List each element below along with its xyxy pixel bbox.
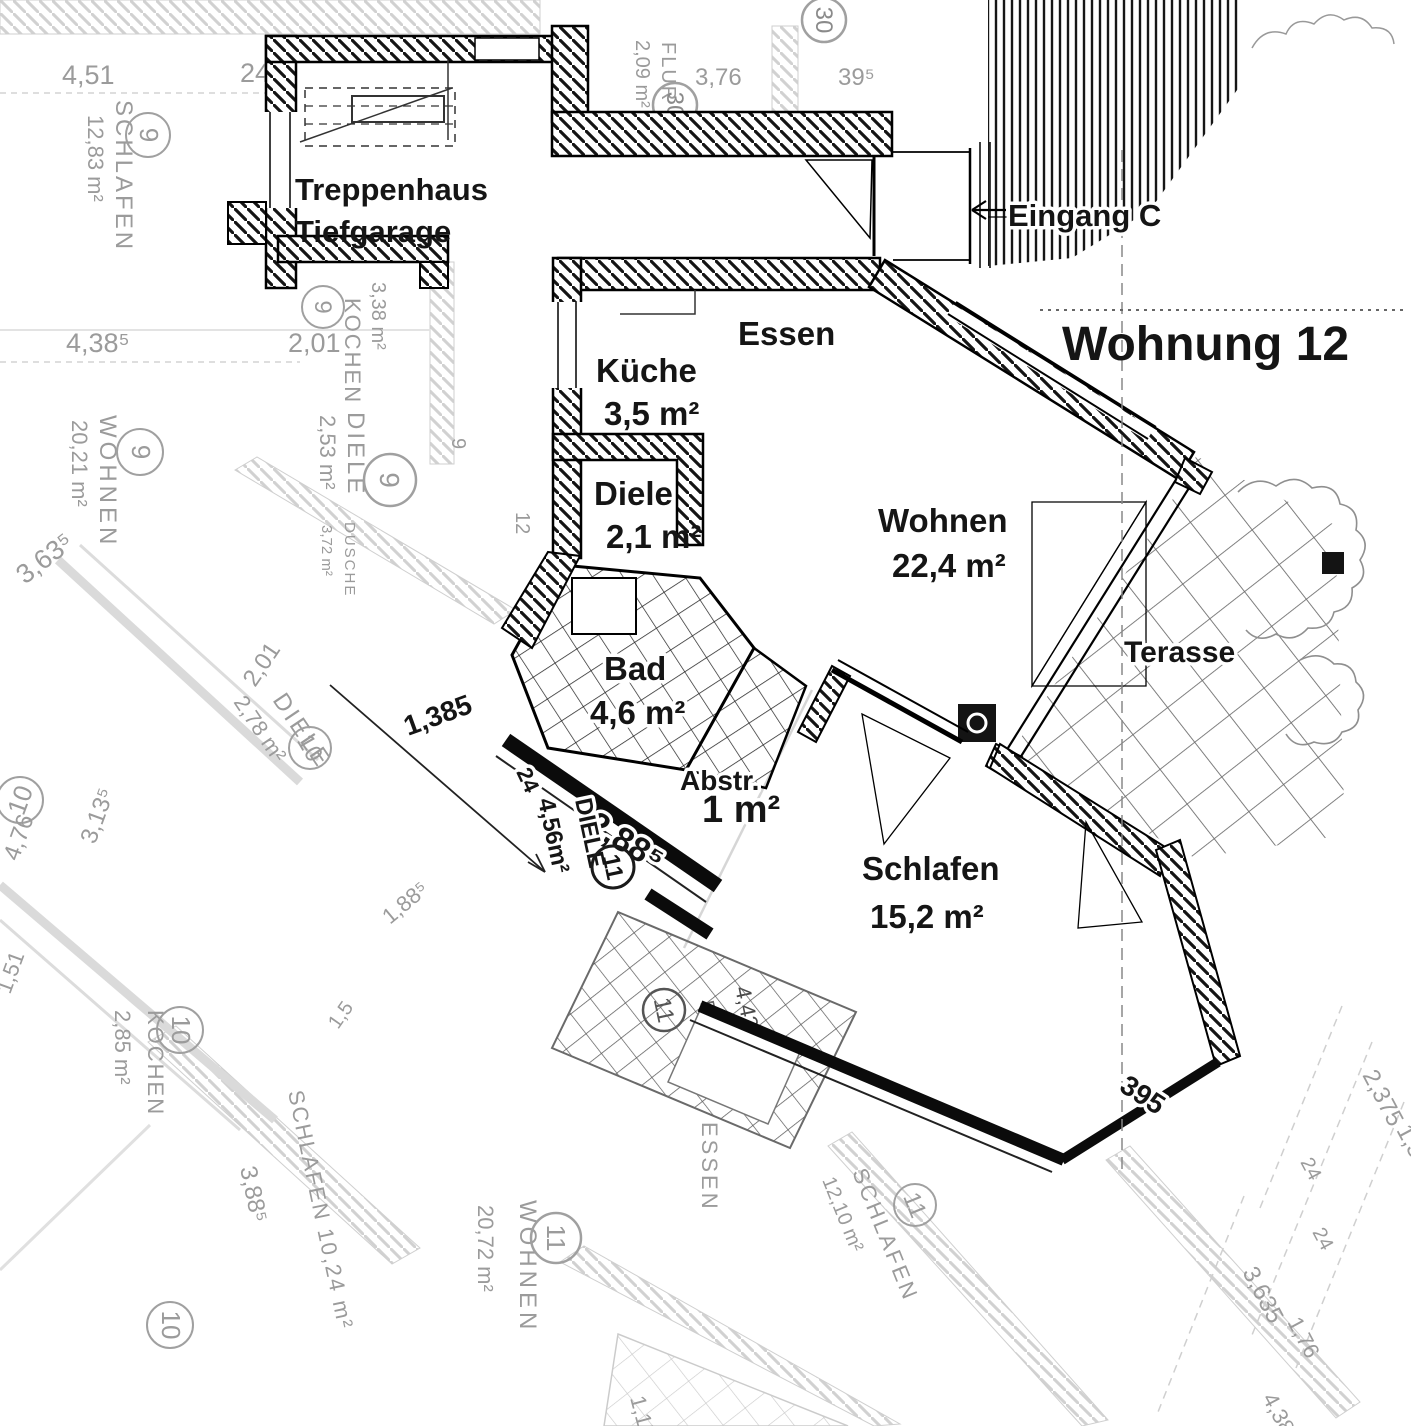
bg-label: 9	[447, 438, 469, 449]
bg-label: 1,88⁵	[377, 876, 433, 929]
bg-label: 4,38	[1258, 1389, 1300, 1426]
bg-label: 3,76	[695, 64, 742, 91]
bg-unit-number: 10	[156, 1311, 186, 1340]
dim-label: 395	[1115, 1069, 1171, 1120]
stairwell-label-line1: Treppenhaus	[295, 172, 488, 207]
bedroom-wall-top-line	[838, 660, 968, 732]
bg-unit-number: 9	[309, 300, 336, 313]
bg-label: ESSEN	[697, 1122, 722, 1212]
stairwell-label-line2: Tiefgarage	[295, 214, 451, 249]
bg-label: 2,09 m²	[631, 40, 653, 108]
bg-unit-number: 30	[810, 7, 837, 34]
bg-label: DUSCHE	[341, 522, 358, 597]
bg-unit-number: 11	[541, 1225, 571, 1252]
corridor-wall-top	[552, 112, 892, 156]
room-area-schlafen: 15,2 m²	[870, 898, 984, 935]
room-label-essen: Essen	[738, 315, 835, 352]
stairs	[300, 60, 455, 146]
bg-label: 2,53 m²	[315, 415, 340, 490]
bg-wall-line	[0, 1125, 150, 1270]
shrub-outline	[1252, 15, 1394, 48]
bg-wall	[430, 262, 454, 464]
door-swing	[862, 714, 950, 844]
entrance-label: Eingang C	[1008, 198, 1161, 233]
floor-plan-svg: 4,51 24 SCHLAFEN 12,83 m² 9 4,38⁵ 2,01 K…	[0, 0, 1411, 1426]
bg-label: 4,38⁵	[66, 328, 130, 358]
bg-label: SCHLAFEN	[110, 100, 137, 252]
room-label-wohnen: Wohnen	[878, 502, 1008, 539]
unit11-number: 11	[597, 852, 629, 882]
terrace-post	[1322, 552, 1344, 574]
bg-label: 20,21 m²	[67, 420, 92, 507]
room-label-terrasse: Terasse	[1124, 636, 1235, 669]
bg-label: WOHNEN	[94, 415, 121, 548]
bg-wall	[148, 1026, 420, 1264]
hall11-area: 4,56m²	[532, 796, 574, 876]
bg-label: 12	[511, 512, 533, 534]
apartment-title: Wohnung 12	[1062, 318, 1349, 371]
bg-label: 20,72 m²	[473, 1205, 498, 1292]
bg-label: 4,51	[62, 60, 115, 90]
bg-label: 24	[1296, 1154, 1326, 1184]
shower-tray	[572, 578, 636, 634]
dim-label: 1,385	[399, 689, 475, 742]
corridor-wall-bottom	[558, 258, 880, 290]
door-swing	[806, 160, 872, 238]
bg-label: 3,38 m²	[367, 282, 389, 350]
bg-unit-number: 9	[134, 128, 164, 142]
bg-label: 3,13⁵	[75, 785, 120, 847]
bg-unit-number: 9	[126, 445, 156, 459]
room-area-kueche: 3,5 m²	[604, 395, 699, 432]
bg-wall	[1106, 1146, 1360, 1418]
bg-label: 39⁵	[838, 64, 875, 91]
bg-dim-line	[1260, 1006, 1342, 1208]
floorplan-page: 4,51 24 SCHLAFEN 12,83 m² 9 4,38⁵ 2,01 K…	[0, 0, 1411, 1426]
room-area-bad: 4,6 m²	[590, 694, 685, 731]
room-area-diele: 2,1 m²	[606, 518, 701, 555]
room-label-schlafen: Schlafen	[862, 850, 1000, 887]
stairwell-window-gap	[264, 112, 298, 208]
corner-post	[958, 704, 996, 742]
bg-label: 2,375	[1357, 1065, 1409, 1131]
bg-label: 2,01	[288, 328, 341, 358]
room-area-wohnen: 22,4 m²	[892, 547, 1006, 584]
bg-label: 1,5	[324, 997, 358, 1032]
bg-label: 12,83 m²	[83, 115, 108, 202]
bg-wall	[0, 0, 540, 34]
room-label-bad: Bad	[604, 650, 666, 687]
bg-unit-number: 9	[374, 472, 405, 488]
bg-label: 24	[1308, 1224, 1338, 1254]
bg-label: 2,01	[238, 638, 287, 692]
kitchen-window-gap	[551, 302, 583, 388]
bg-label: KOCHEN	[143, 1010, 168, 1116]
bg-label: 3,72 m²	[318, 525, 335, 576]
bg-label: 1,51	[0, 948, 29, 997]
stairwell-window-top	[475, 38, 539, 60]
corridor-wall-jog	[552, 26, 588, 122]
bg-label: 2,85 m²	[110, 1010, 135, 1085]
bedroom-wall-right	[1156, 840, 1240, 1066]
kitchen-counter	[620, 290, 695, 314]
bg-label: 3,63⁵	[10, 527, 79, 590]
room-area-abstellraum: 1 m²	[702, 789, 780, 831]
room-label-diele: Diele	[594, 475, 673, 512]
room-label-kueche: Küche	[596, 352, 697, 389]
bg-unit-number: 10	[166, 1016, 196, 1045]
bg-wall-line	[0, 885, 275, 1120]
bg-label: 1,38⁵	[1391, 1120, 1411, 1183]
stairwell-wall-stub	[228, 202, 266, 244]
stairwell-wall-step	[420, 262, 448, 288]
bg-label: 3,88⁵	[234, 1164, 272, 1225]
